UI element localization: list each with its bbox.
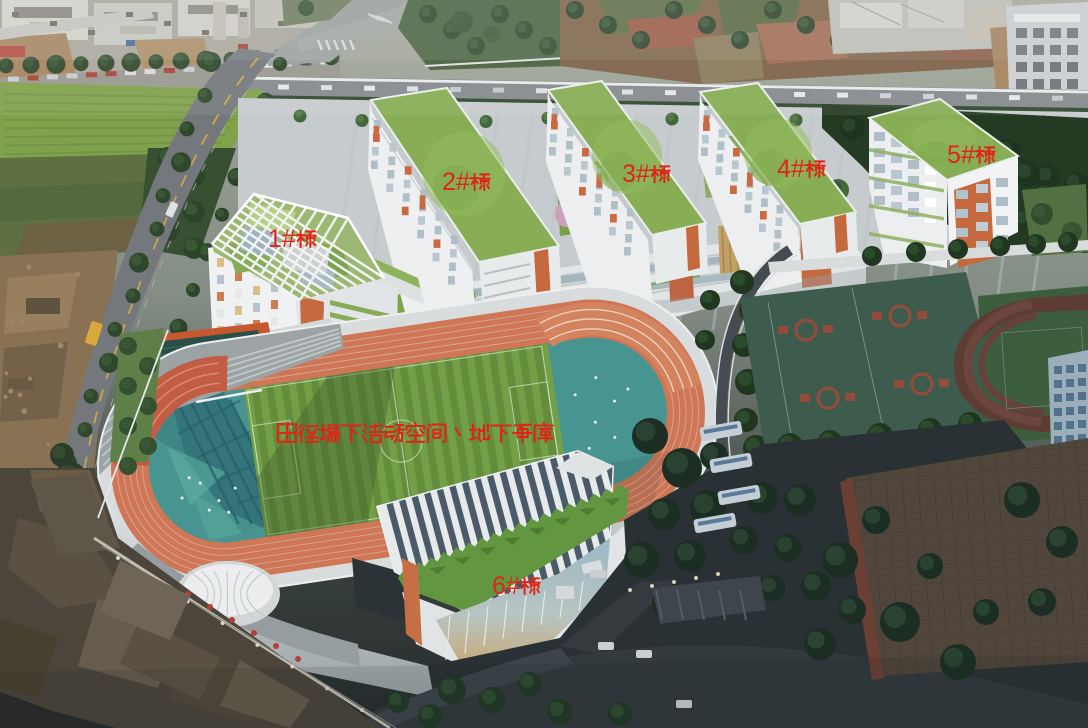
svg-text:3#: 3#	[622, 160, 650, 188]
svg-text:5#: 5#	[947, 141, 975, 169]
svg-text:1#: 1#	[268, 225, 296, 253]
svg-text:4#: 4#	[777, 155, 805, 183]
svg-text:6#: 6#	[492, 572, 520, 600]
svg-text:2#: 2#	[442, 168, 470, 196]
